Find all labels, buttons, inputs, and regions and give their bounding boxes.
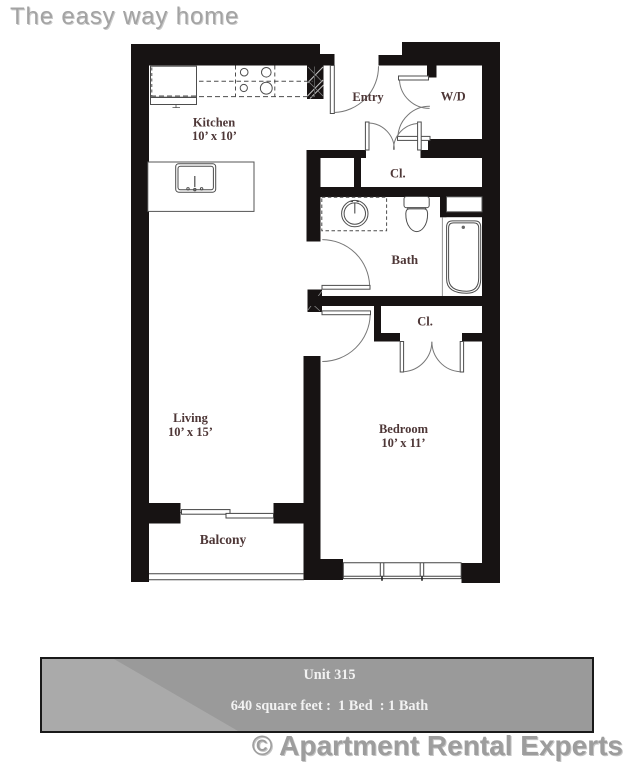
svg-text:Balcony: Balcony [200, 532, 247, 547]
svg-text:Entry: Entry [352, 90, 384, 104]
svg-text:Bath: Bath [391, 252, 419, 267]
svg-text:Kitchen: Kitchen [193, 116, 235, 130]
svg-text:Bedroom: Bedroom [379, 422, 429, 436]
svg-text:10’ x 10’: 10’ x 10’ [192, 129, 237, 143]
svg-text:W/D: W/D [441, 90, 466, 104]
svg-text:10’ x 11’: 10’ x 11’ [381, 436, 425, 450]
svg-text:Cl.: Cl. [390, 166, 406, 180]
svg-text:Cl.: Cl. [417, 314, 433, 328]
svg-text:10’ x 15’: 10’ x 15’ [168, 425, 213, 439]
svg-text:Living: Living [173, 411, 208, 425]
